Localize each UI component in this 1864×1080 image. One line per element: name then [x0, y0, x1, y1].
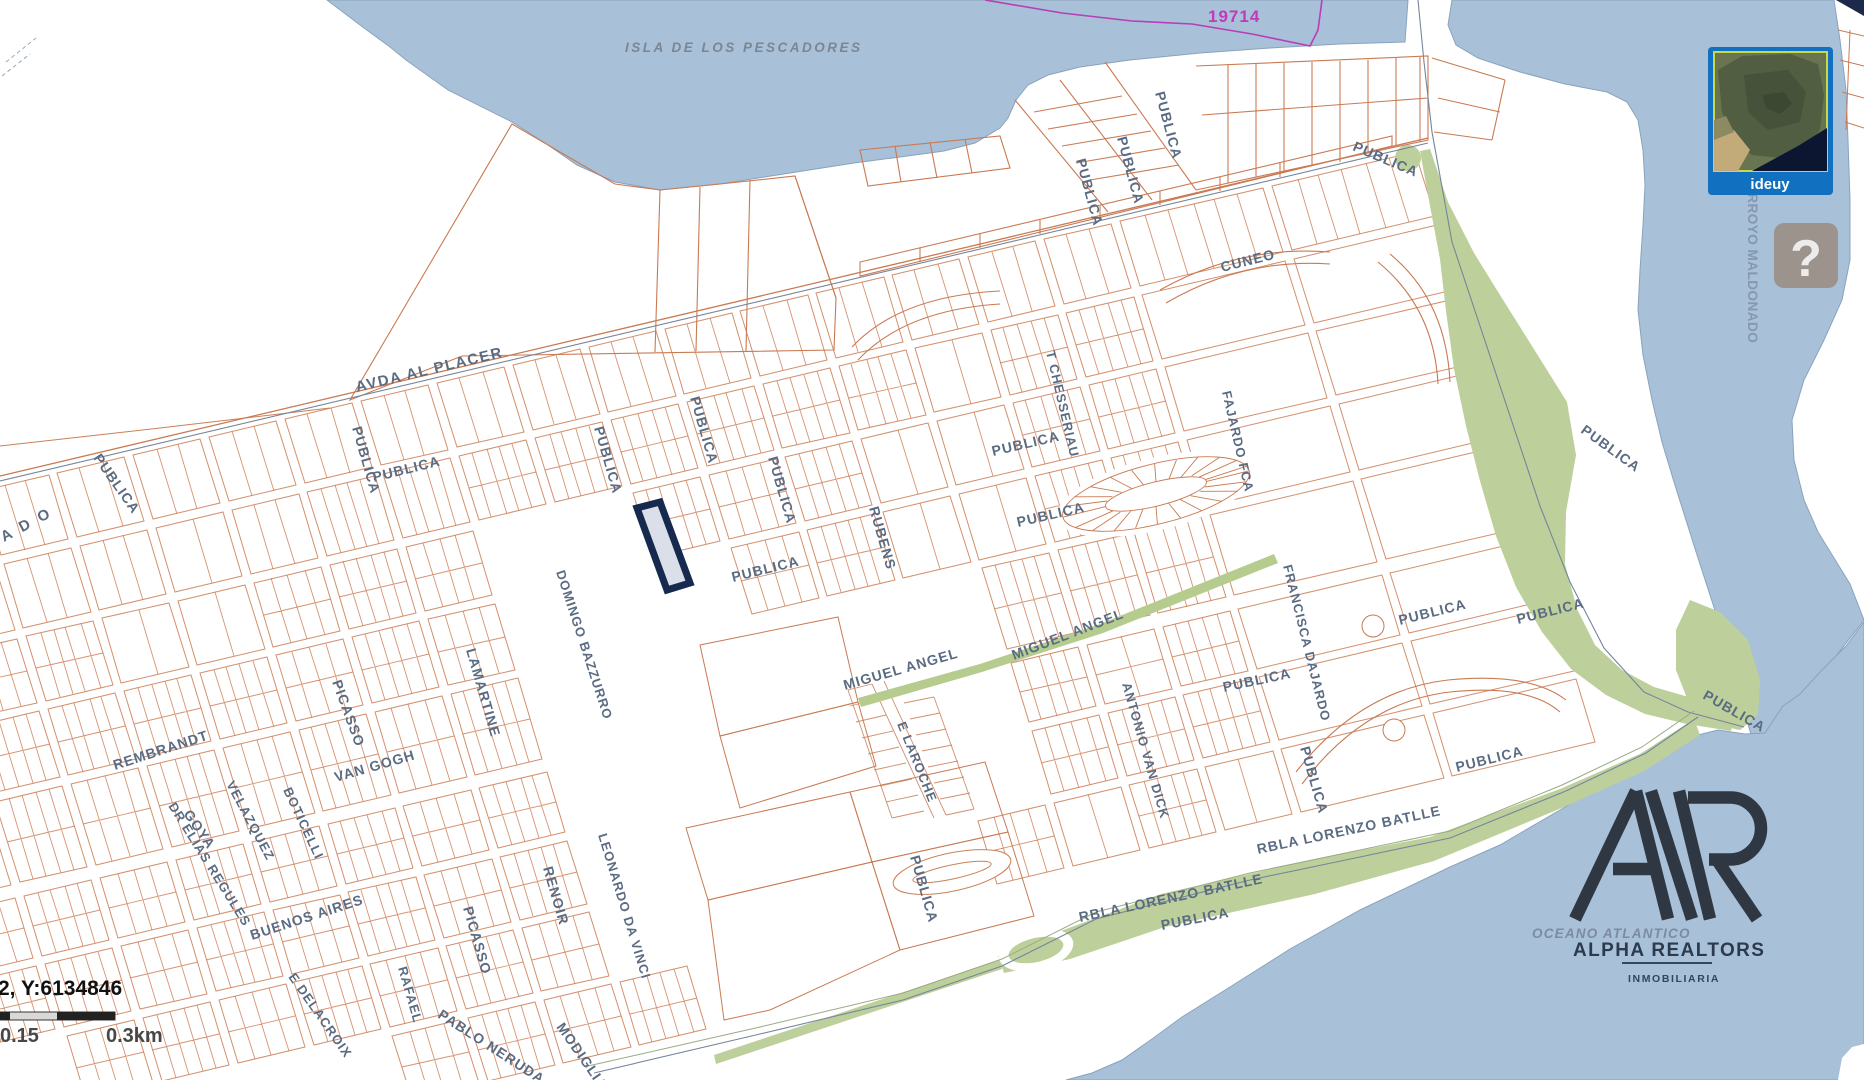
svg-text:0.15: 0.15 [0, 1025, 39, 1047]
svg-text:0.3km: 0.3km [106, 1025, 163, 1047]
svg-text:?: ? [1790, 230, 1822, 288]
svg-text:19714: 19714 [1208, 7, 1260, 26]
svg-text:OCEANO ATLANTICO: OCEANO ATLANTICO [1532, 926, 1691, 941]
svg-text:ISLA DE LOS PESCADORES: ISLA DE LOS PESCADORES [625, 40, 863, 55]
svg-text:ARROYO MALDONADO: ARROYO MALDONADO [1745, 183, 1760, 343]
svg-text:ideuy: ideuy [1750, 176, 1790, 193]
svg-text:2, Y:6134846: 2, Y:6134846 [0, 977, 122, 1000]
svg-text:INMOBILIARIA: INMOBILIARIA [1628, 973, 1720, 985]
svg-text:ALPHA REALTORS: ALPHA REALTORS [1573, 940, 1765, 961]
